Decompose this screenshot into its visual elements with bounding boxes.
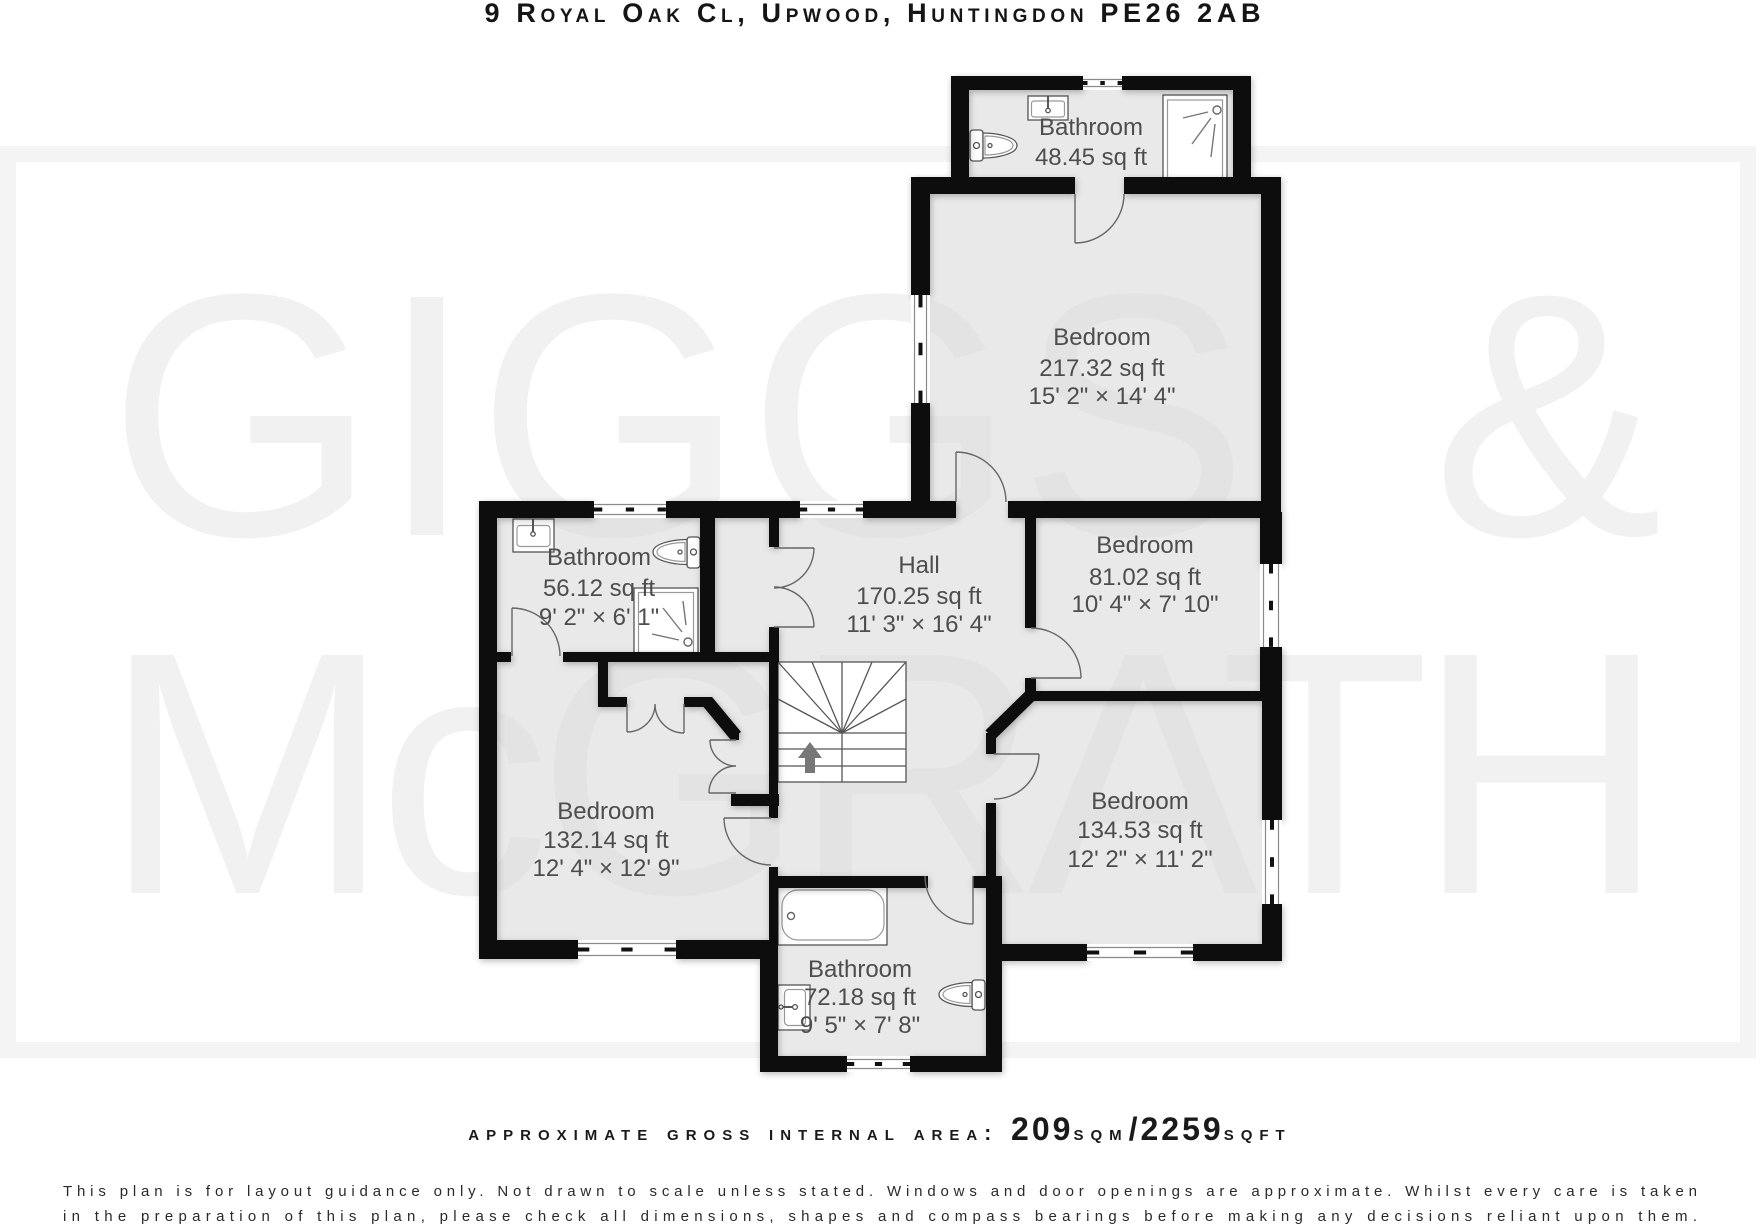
svg-text:in the preparation of this pla: in the preparation of this plan, please … — [63, 1208, 1697, 1225]
svg-text:&: & — [1432, 223, 1663, 609]
svg-text:Bathroom56.12 sq ft9' 2" × 6': Bathroom56.12 sq ft9' 2" × 6' 1" — [539, 544, 659, 631]
svg-text:Bathroom72.18 sq ft9' 5" × 7': Bathroom72.18 sq ft9' 5" × 7' 8" — [800, 956, 920, 1039]
svg-text:9 Royal Oak Cl, Upwood, Huntin: 9 Royal Oak Cl, Upwood, Huntingdon PE26 … — [485, 0, 1264, 28]
